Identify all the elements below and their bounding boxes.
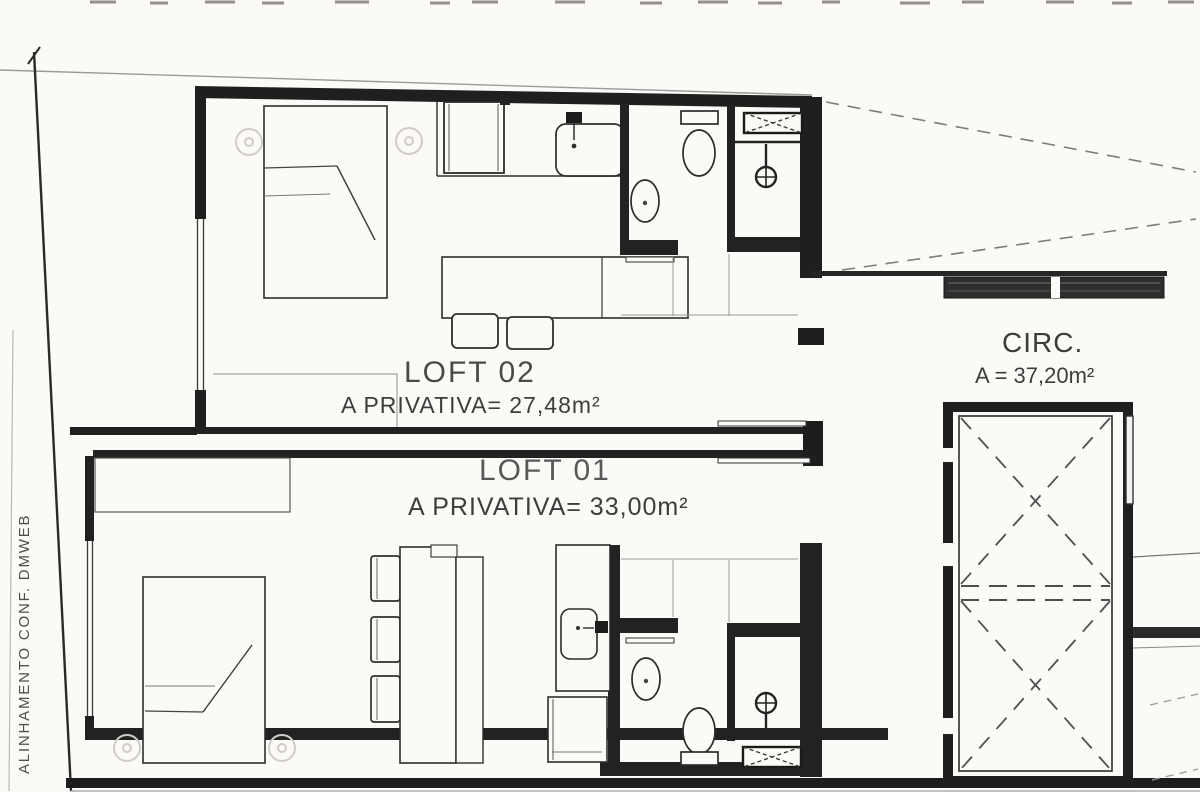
circ-name-label: CIRC. — [1002, 329, 1083, 357]
loft02-bed — [264, 106, 387, 298]
sliding-door-track — [626, 638, 674, 643]
upper-cabinet — [444, 102, 504, 173]
chair — [371, 556, 400, 601]
loft02-toilet — [681, 111, 718, 176]
loft01-area-label: A PRIVATIVA= 33,00m² — [408, 495, 689, 520]
dining-table — [400, 547, 456, 763]
loft01-ventilation-duct — [743, 747, 801, 767]
loft01-bed — [143, 577, 265, 763]
loft02-area-label: A PRIVATIVA= 27,48m² — [341, 394, 601, 417]
door-leaf — [1126, 416, 1133, 504]
sliding-door-track — [718, 421, 806, 426]
chair — [371, 676, 400, 722]
sliding-door-track — [718, 458, 810, 463]
loft01-washbasin — [632, 658, 660, 700]
sliding-door-track — [626, 257, 674, 262]
loft01-name-label: LOFT 01 — [479, 456, 611, 486]
circ-area-label: A = 37,20m² — [975, 365, 1094, 387]
boundary-note-vertical-label: ALINHAMENTO CONF. DMWEB — [16, 514, 33, 774]
loft01-kitchen-sink — [556, 545, 610, 691]
loft02-washbasin — [631, 180, 659, 222]
chair — [371, 617, 400, 662]
loft02-name-label: LOFT 02 — [404, 358, 536, 388]
loft01-cooktop — [548, 697, 607, 762]
chair — [507, 317, 553, 349]
kitchen-counter — [456, 557, 483, 763]
loft02-ventilation-duct — [744, 113, 802, 133]
hatched-wall-band — [944, 277, 1164, 298]
chair — [452, 314, 498, 348]
floor-plan-page: LOFT 02 A PRIVATIVA= 27,48m² LOFT 01 A P… — [0, 0, 1200, 792]
